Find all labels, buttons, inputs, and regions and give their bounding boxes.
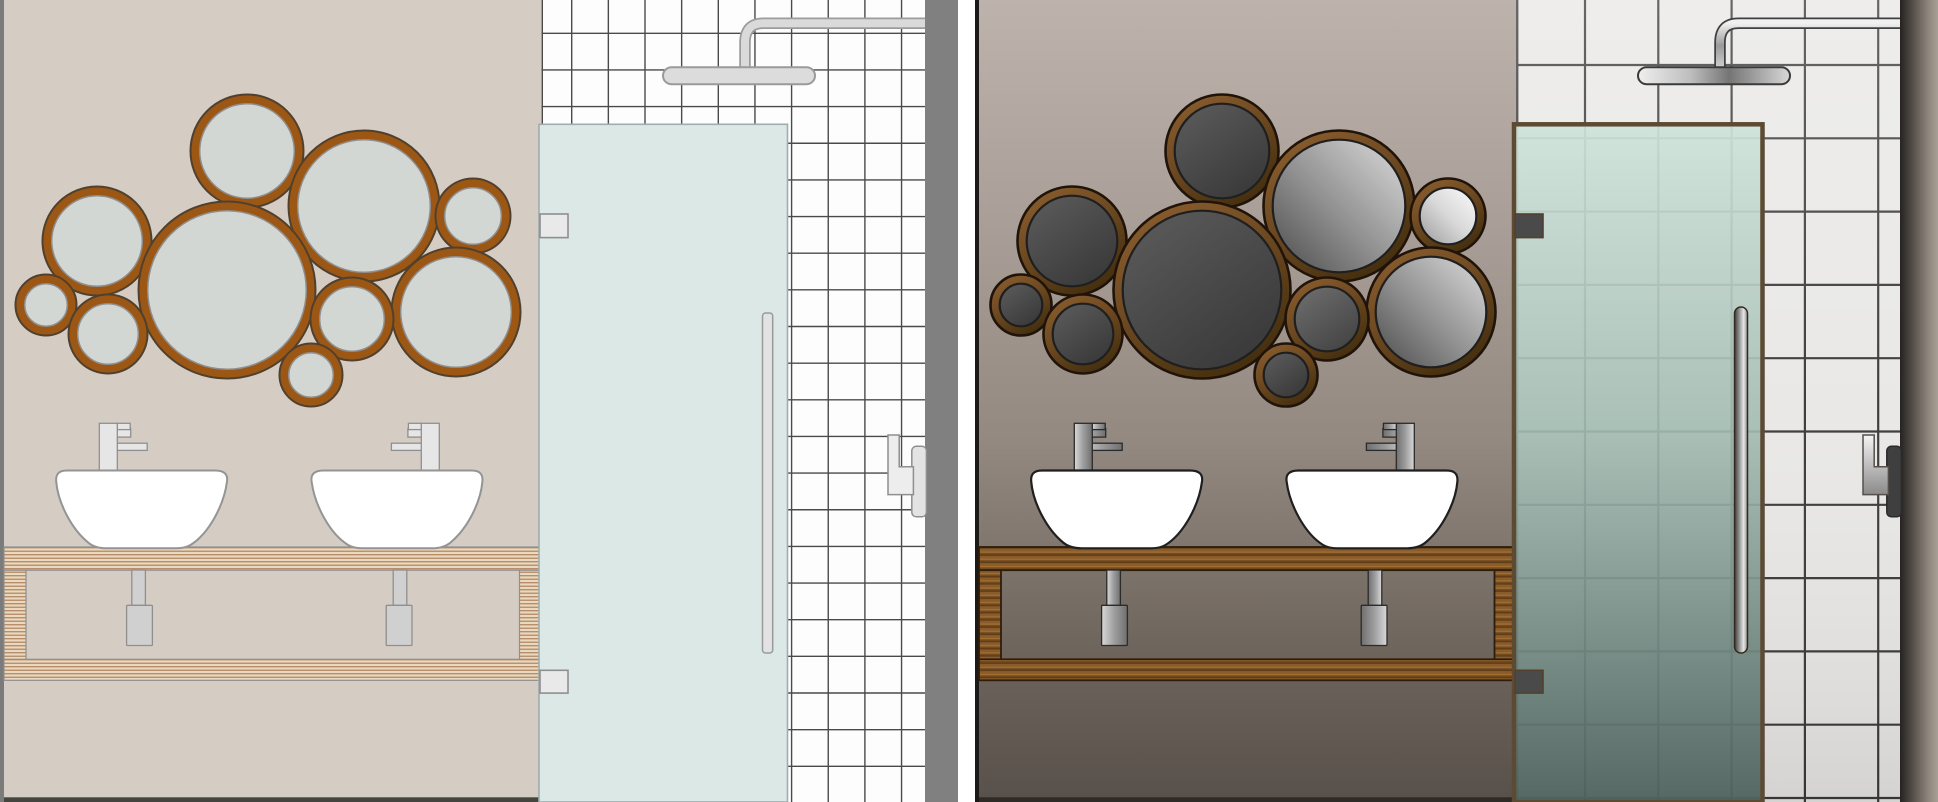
drain-trap	[1361, 605, 1387, 645]
rain-shower-head	[1638, 67, 1790, 84]
door-hinge-top	[540, 214, 568, 238]
mirror-glass	[200, 104, 295, 199]
drain-trap	[127, 605, 153, 645]
mirror-glass	[401, 257, 512, 368]
mirror-glass	[25, 284, 68, 327]
drain-pipe	[132, 570, 146, 606]
panel-edge-border	[975, 0, 979, 802]
vanity-bottom-shelf	[979, 659, 1517, 680]
wall-mirror	[1255, 344, 1318, 407]
mirror-glass	[1027, 196, 1118, 287]
wall-mirror	[392, 248, 521, 377]
faucet-handle	[117, 423, 130, 429]
door-hinge-bottom	[540, 670, 568, 693]
door-hinge-top	[1515, 214, 1543, 238]
drain-trap	[386, 605, 412, 645]
rain-shower-head	[663, 67, 815, 84]
baseboard	[979, 797, 1517, 802]
baseboard	[4, 797, 542, 802]
left-panel-illustration	[0, 0, 958, 802]
wall-mirror	[436, 179, 511, 254]
wall-mirror	[280, 344, 343, 407]
door-hinge-bottom	[1515, 670, 1543, 693]
mirror-glass	[52, 196, 143, 287]
wall-mirror	[289, 131, 440, 282]
shower-glass-door	[1514, 124, 1763, 802]
mirror-glass	[1376, 257, 1487, 368]
shower-glass-door	[539, 124, 788, 802]
mirror-glass	[1273, 140, 1406, 273]
mirror-glass	[78, 304, 139, 365]
side-wall-strip	[925, 0, 958, 802]
vessel-sink	[56, 471, 227, 549]
mirror-glass	[1175, 104, 1270, 199]
right-panel-illustration	[975, 0, 1938, 802]
mirror-glass	[1000, 284, 1043, 327]
drain-pipe	[393, 570, 407, 606]
mirror-glass	[1123, 211, 1282, 370]
faucet-handle	[1383, 423, 1396, 429]
wall-mirror	[69, 295, 148, 374]
mirror-glass	[320, 287, 385, 352]
vanity-countertop	[4, 547, 542, 570]
vessel-sink	[1031, 471, 1202, 549]
vanity-leg-left	[979, 570, 1001, 660]
vessel-sink	[1286, 471, 1457, 549]
mirror-glass	[445, 188, 502, 245]
wall-mirror	[991, 275, 1052, 336]
faucet-body	[1074, 423, 1092, 473]
drain-trap	[1102, 605, 1128, 645]
mirror-glass	[1264, 353, 1309, 398]
faucet-body	[99, 423, 117, 473]
vanity-leg-left	[4, 570, 26, 660]
door-handle	[1735, 307, 1748, 653]
faucet-handle	[408, 423, 421, 429]
mirror-glass	[289, 353, 334, 398]
mirror-glass	[298, 140, 431, 273]
wall-mirror	[1411, 179, 1486, 254]
glass-door-panel	[539, 124, 788, 802]
door-handle	[763, 313, 773, 653]
faucet-body	[1396, 423, 1414, 473]
panel-divider-gap	[958, 0, 975, 802]
faucet-handle	[1092, 423, 1105, 429]
mirror-glass	[1053, 304, 1114, 365]
wall-mirror	[1166, 95, 1279, 208]
side-wall-strip	[1900, 0, 1938, 802]
wall-mirror	[1367, 248, 1496, 377]
wall-mirror	[191, 95, 304, 208]
bathroom-comparison-canvas	[0, 0, 1938, 802]
drain-pipe	[1368, 570, 1382, 606]
vanity-countertop	[979, 547, 1517, 570]
vessel-sink	[311, 471, 482, 549]
wall-mirror	[16, 275, 77, 336]
vanity-bottom-shelf	[4, 659, 542, 680]
wall-mirror	[1044, 295, 1123, 374]
mirror-glass	[1295, 287, 1360, 352]
panel-edge-border	[0, 0, 4, 802]
glass-door-panel	[1514, 124, 1763, 802]
mirror-glass	[148, 211, 307, 370]
drain-pipe	[1107, 570, 1121, 606]
faucet-body	[421, 423, 439, 473]
mirror-glass	[1420, 188, 1477, 245]
